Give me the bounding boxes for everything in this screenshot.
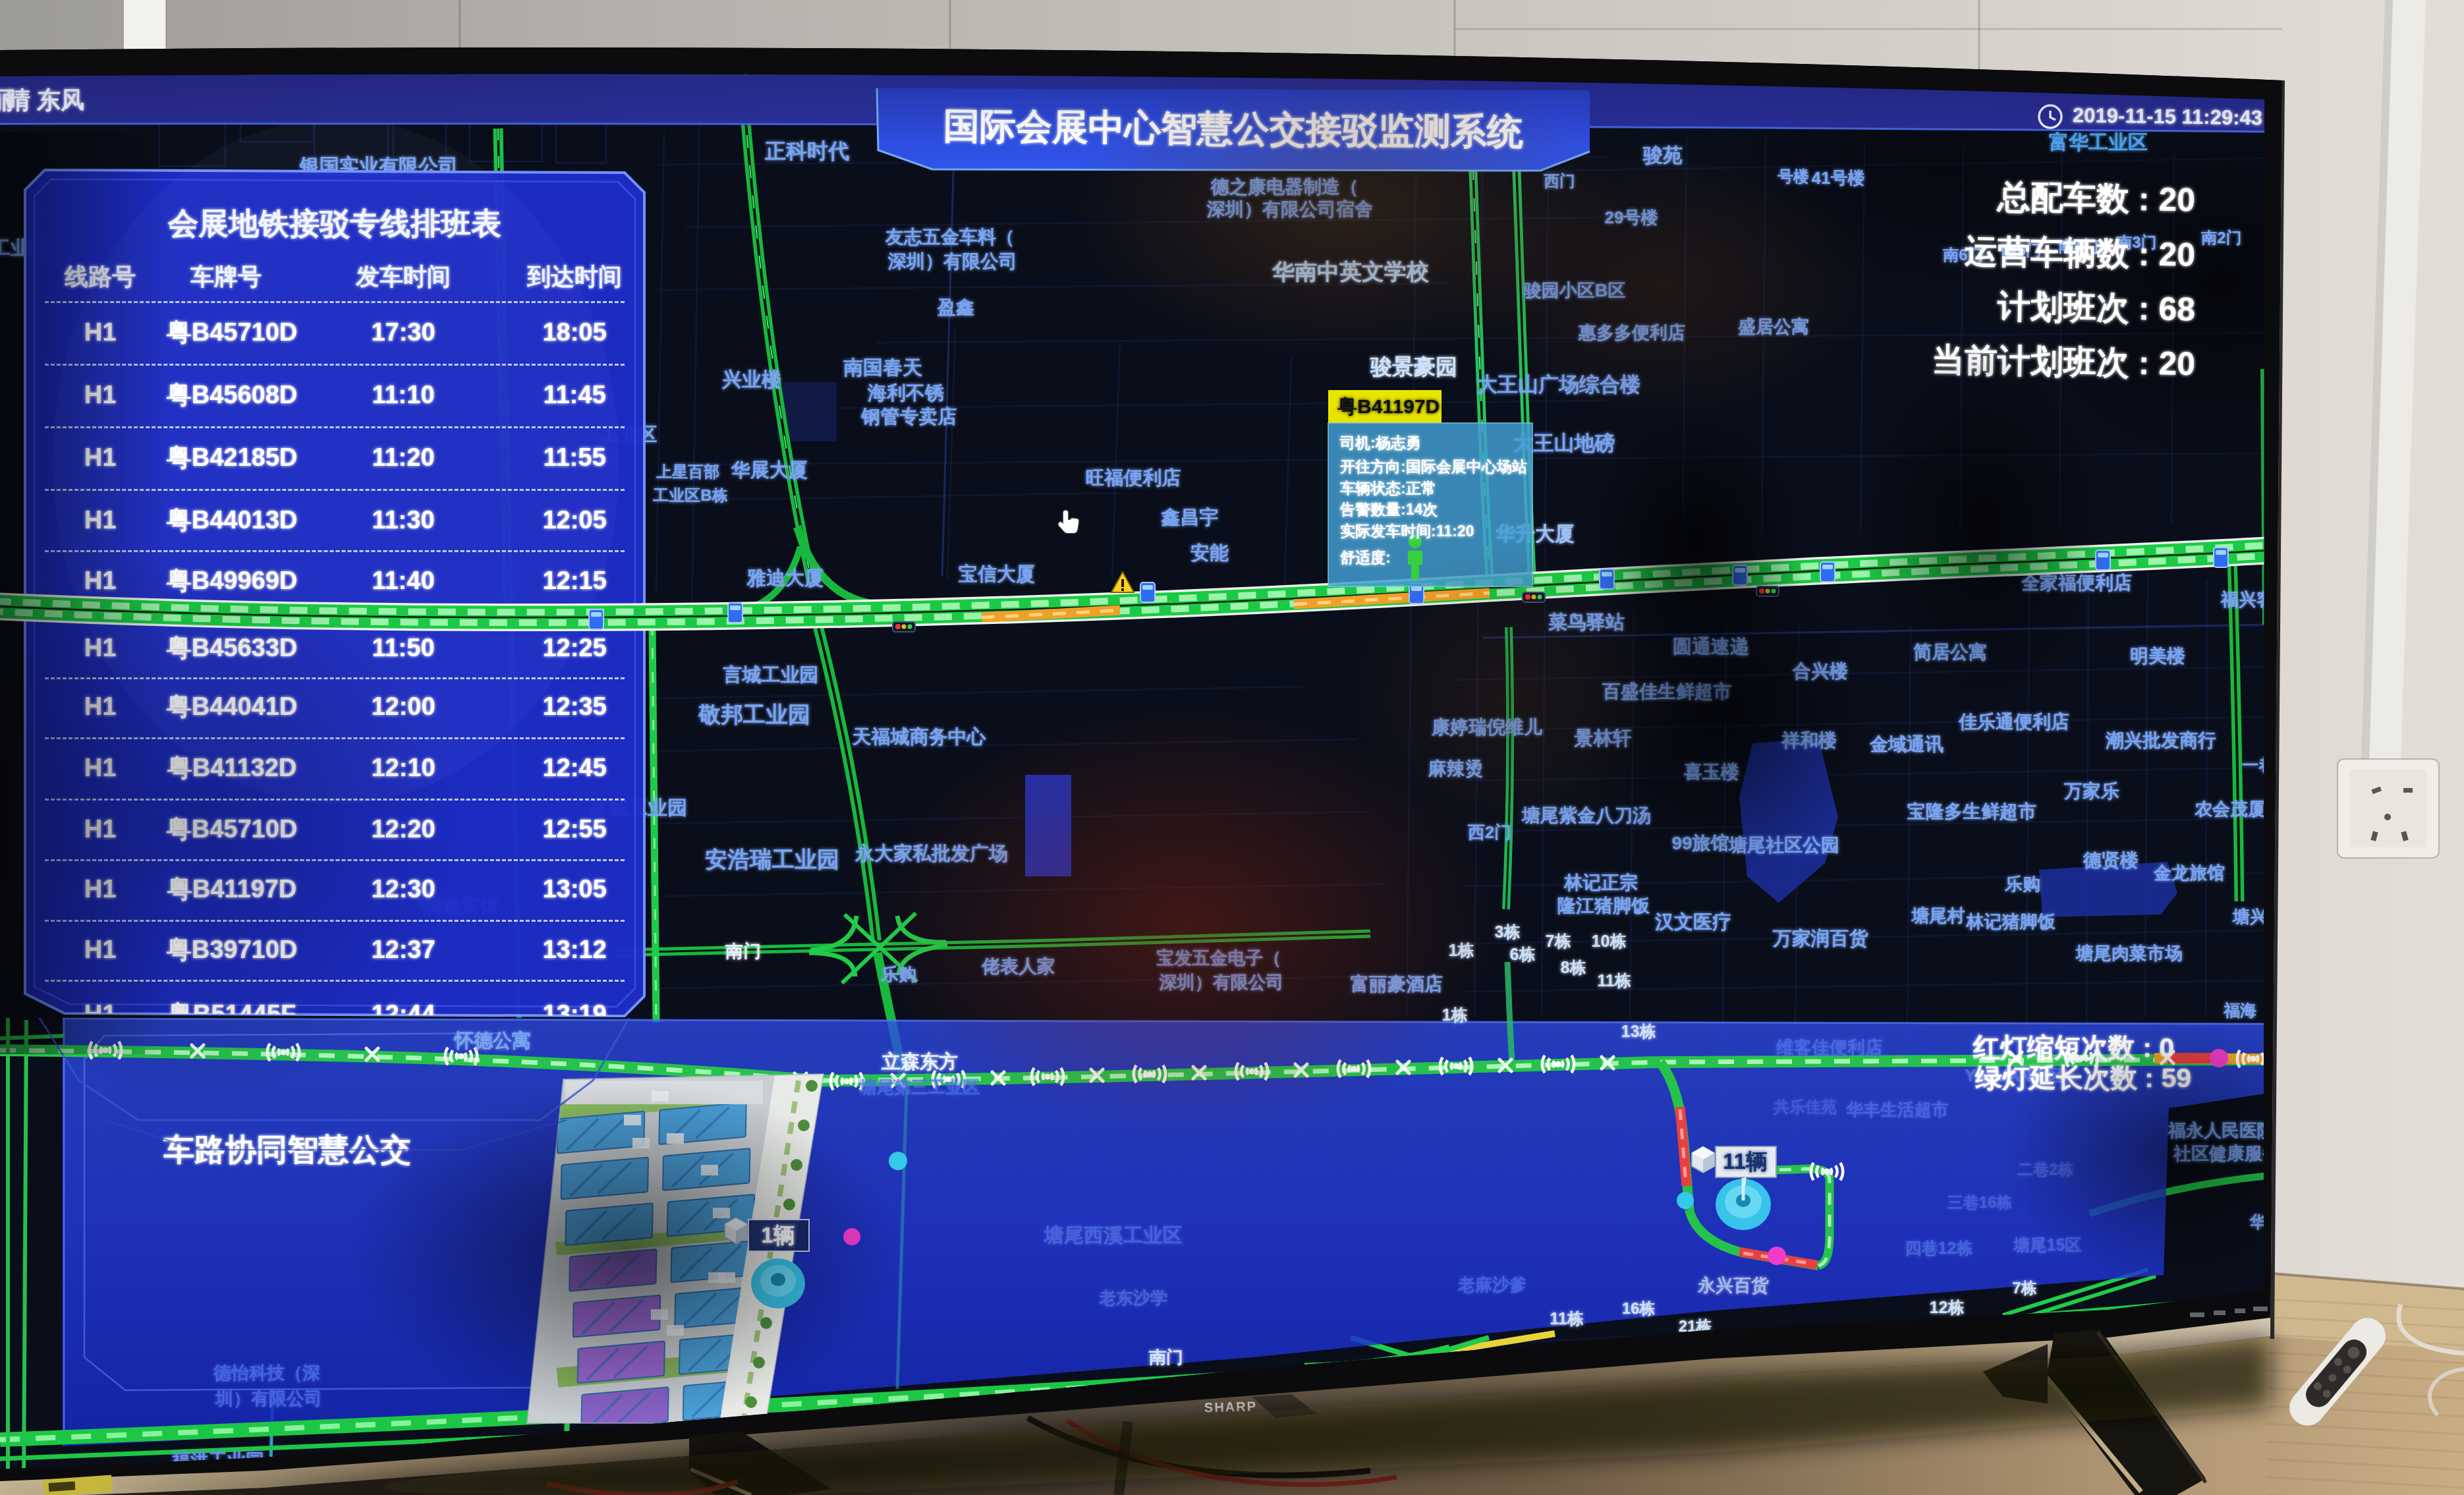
svg-text:SHARP: SHARP <box>1204 1399 1258 1415</box>
